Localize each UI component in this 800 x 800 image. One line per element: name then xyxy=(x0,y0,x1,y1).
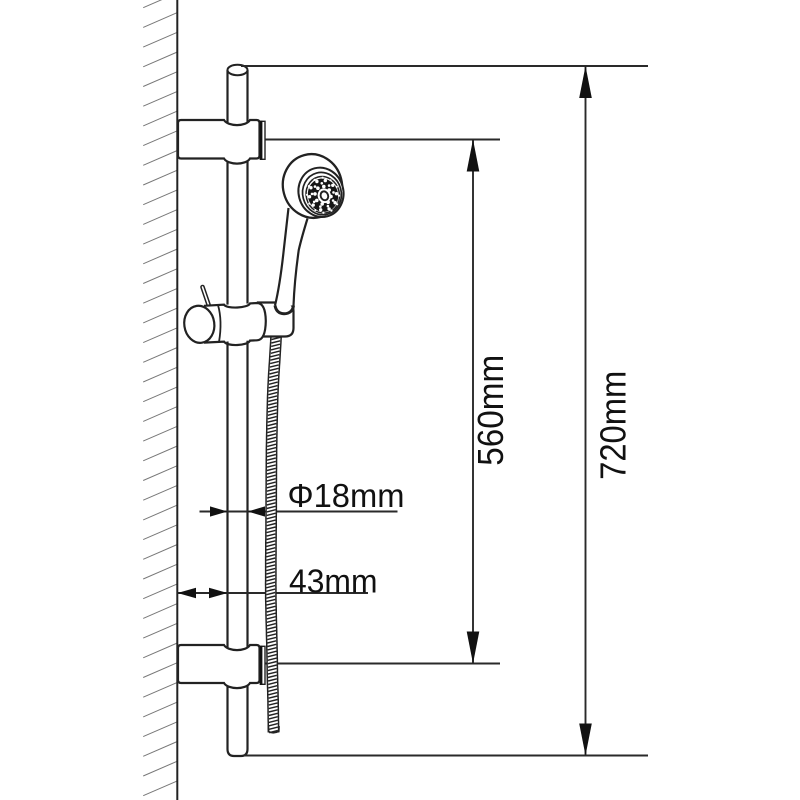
svg-text:720mm: 720mm xyxy=(593,371,634,480)
svg-text:560mm: 560mm xyxy=(470,355,511,466)
svg-text:Φ18mm: Φ18mm xyxy=(288,477,405,514)
svg-text:43mm: 43mm xyxy=(289,564,378,601)
